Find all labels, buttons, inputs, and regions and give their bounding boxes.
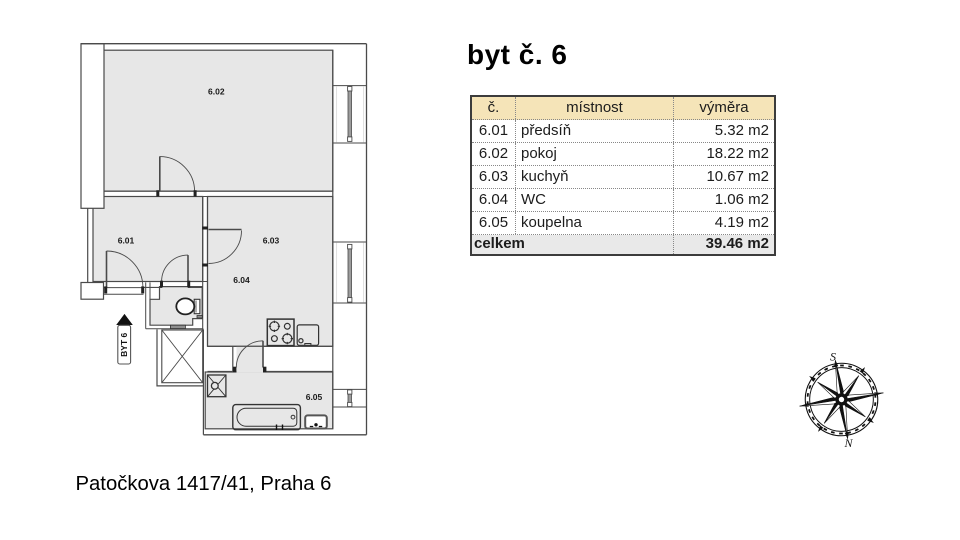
svg-text:6.04: 6.04: [233, 275, 250, 285]
svg-text:6.01: 6.01: [118, 236, 135, 246]
svg-text:6.02: 6.02: [208, 87, 225, 97]
svg-text:N: N: [843, 436, 853, 450]
svg-text:6.05: 6.05: [306, 392, 323, 402]
svg-text:S: S: [830, 350, 836, 364]
svg-text:BYT 6: BYT 6: [119, 332, 129, 356]
svg-text:6.03: 6.03: [263, 236, 280, 246]
